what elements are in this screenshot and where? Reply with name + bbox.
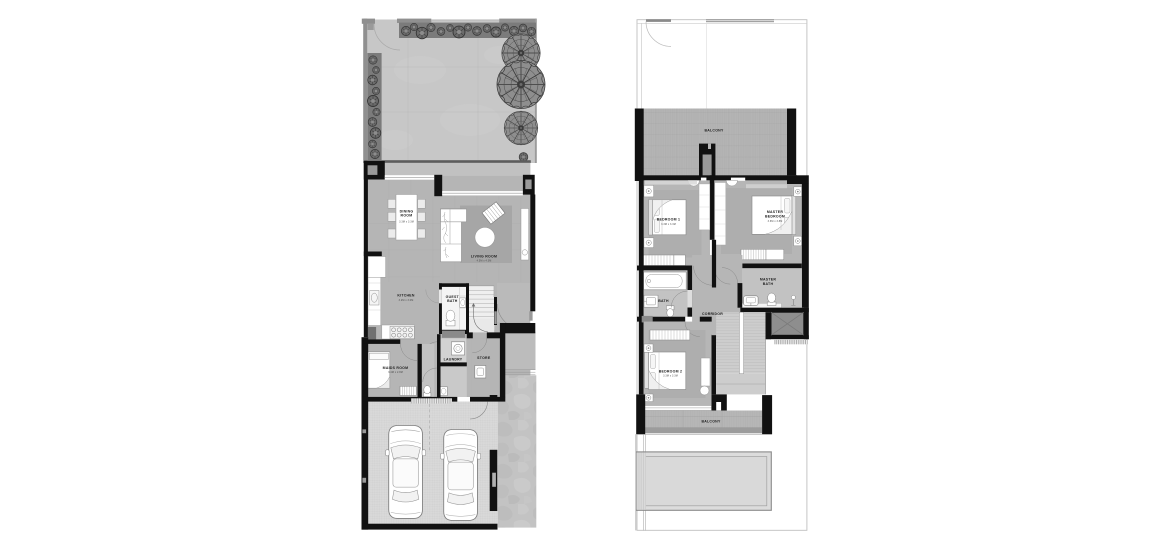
svg-text:DINING: DINING — [400, 209, 414, 213]
svg-text:ROOM: ROOM — [401, 214, 413, 218]
svg-text:MASTER: MASTER — [767, 210, 784, 214]
svg-text:3.3M x 3.3M: 3.3M x 3.3M — [663, 375, 678, 378]
svg-text:KITCHEN: KITCHEN — [397, 294, 415, 298]
svg-text:4.5M x 4.3M: 4.5M x 4.3M — [477, 259, 492, 262]
svg-text:3.4M x 2.8M: 3.4M x 2.8M — [388, 371, 403, 374]
svg-text:BEDROOM 1: BEDROOM 1 — [657, 218, 680, 222]
svg-text:MASTER: MASTER — [760, 277, 777, 281]
svg-text:3.3M x 3.3M: 3.3M x 3.3M — [661, 223, 676, 226]
svg-text:CORRIDOR: CORRIDOR — [702, 312, 723, 316]
svg-text:3.3M x 3.3M: 3.3M x 3.3M — [399, 220, 414, 223]
svg-text:BALCONY: BALCONY — [701, 420, 720, 424]
svg-text:BATH: BATH — [658, 299, 669, 303]
svg-text:BALCONY: BALCONY — [704, 128, 723, 132]
svg-text:LIVING ROOM: LIVING ROOM — [471, 254, 497, 258]
svg-text:3.2M x 3.0M: 3.2M x 3.0M — [399, 299, 414, 302]
svg-text:3.6M x 3.8M: 3.6M x 3.8M — [768, 220, 783, 223]
svg-text:BATH: BATH — [763, 282, 774, 286]
svg-text:LAUNDRY: LAUNDRY — [444, 357, 463, 361]
svg-text:BEDROOM: BEDROOM — [765, 215, 785, 219]
svg-text:MAIDS ROOM: MAIDS ROOM — [383, 366, 409, 370]
svg-text:STORE: STORE — [477, 356, 491, 360]
svg-text:BATH: BATH — [447, 299, 458, 303]
svg-text:BEDROOM 2: BEDROOM 2 — [659, 369, 682, 373]
